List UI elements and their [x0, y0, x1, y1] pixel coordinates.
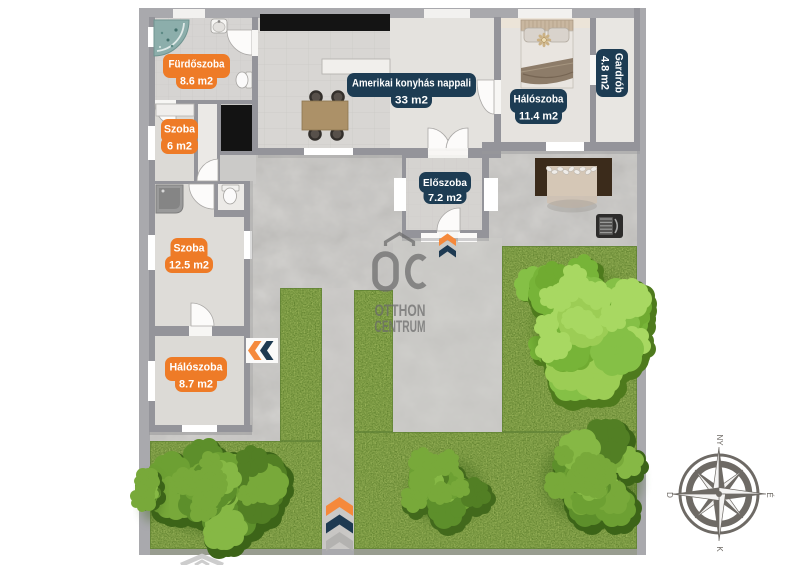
- svg-text:K: K: [715, 546, 724, 552]
- svg-text:33 m2: 33 m2: [395, 95, 428, 107]
- svg-text:12.5 m2: 12.5 m2: [169, 260, 209, 272]
- svg-text:Fürdőszoba: Fürdőszoba: [169, 59, 226, 71]
- svg-text:4.8 m2: 4.8 m2: [599, 56, 611, 90]
- svg-text:Hálószoba: Hálószoba: [170, 362, 224, 374]
- svg-text:Szoba: Szoba: [164, 124, 196, 136]
- svg-text:NY: NY: [715, 434, 724, 446]
- svg-text:Szoba: Szoba: [174, 243, 206, 255]
- svg-text:11.4 m2: 11.4 m2: [519, 111, 558, 123]
- svg-text:É: É: [765, 492, 774, 497]
- svg-text:Gardrób: Gardrób: [613, 53, 625, 93]
- svg-text:Előszoba: Előszoba: [423, 177, 467, 189]
- svg-text:8.6 m2: 8.6 m2: [180, 76, 213, 88]
- svg-text:Amerikai konyhás nappali: Amerikai konyhás nappali: [352, 78, 471, 90]
- svg-text:7.2 m2: 7.2 m2: [428, 192, 462, 204]
- svg-text:8.7 m2: 8.7 m2: [179, 379, 213, 391]
- svg-text:6 m2: 6 m2: [167, 141, 192, 153]
- svg-text:CENTRUM: CENTRUM: [375, 318, 426, 336]
- svg-text:D: D: [665, 492, 674, 498]
- svg-text:Hálószoba: Hálószoba: [514, 94, 565, 106]
